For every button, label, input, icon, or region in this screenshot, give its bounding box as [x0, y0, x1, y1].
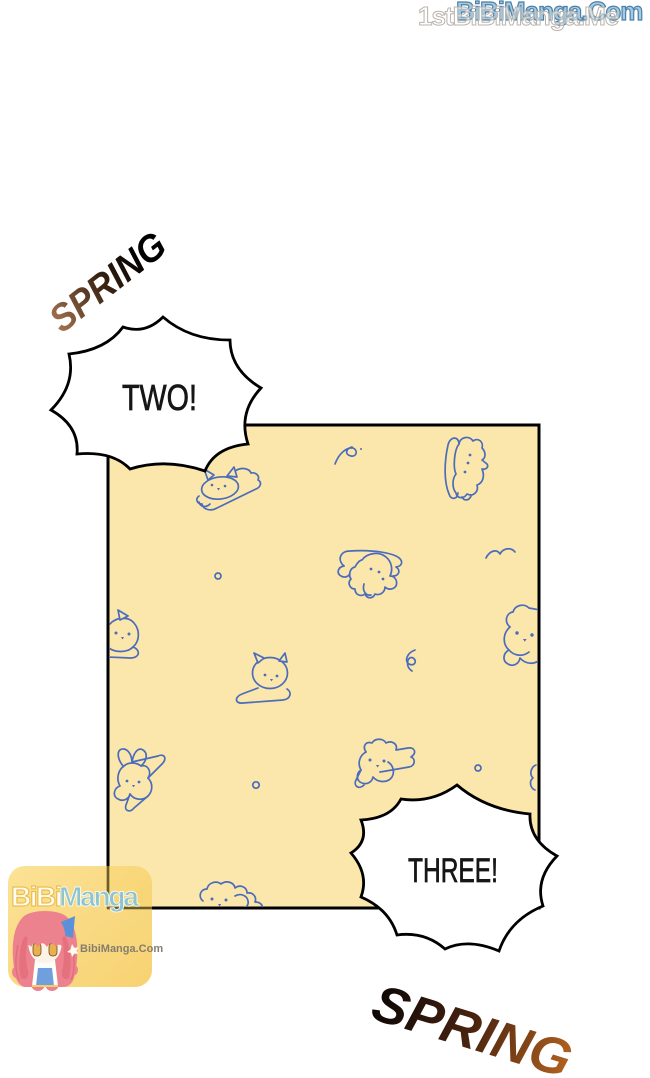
svg-text:BibiManga.Com: BibiManga.Com [80, 943, 163, 955]
svg-text:SPRING: SPRING [365, 974, 578, 1078]
svg-text:1stBiBiManga.Me: 1stBiBiManga.Me [418, 1, 619, 31]
svg-text:TWO!: TWO! [122, 377, 197, 418]
svg-text:Manga: Manga [59, 881, 139, 912]
svg-text:BiBi: BiBi [11, 881, 61, 912]
svg-text:THREE!: THREE! [408, 852, 498, 890]
